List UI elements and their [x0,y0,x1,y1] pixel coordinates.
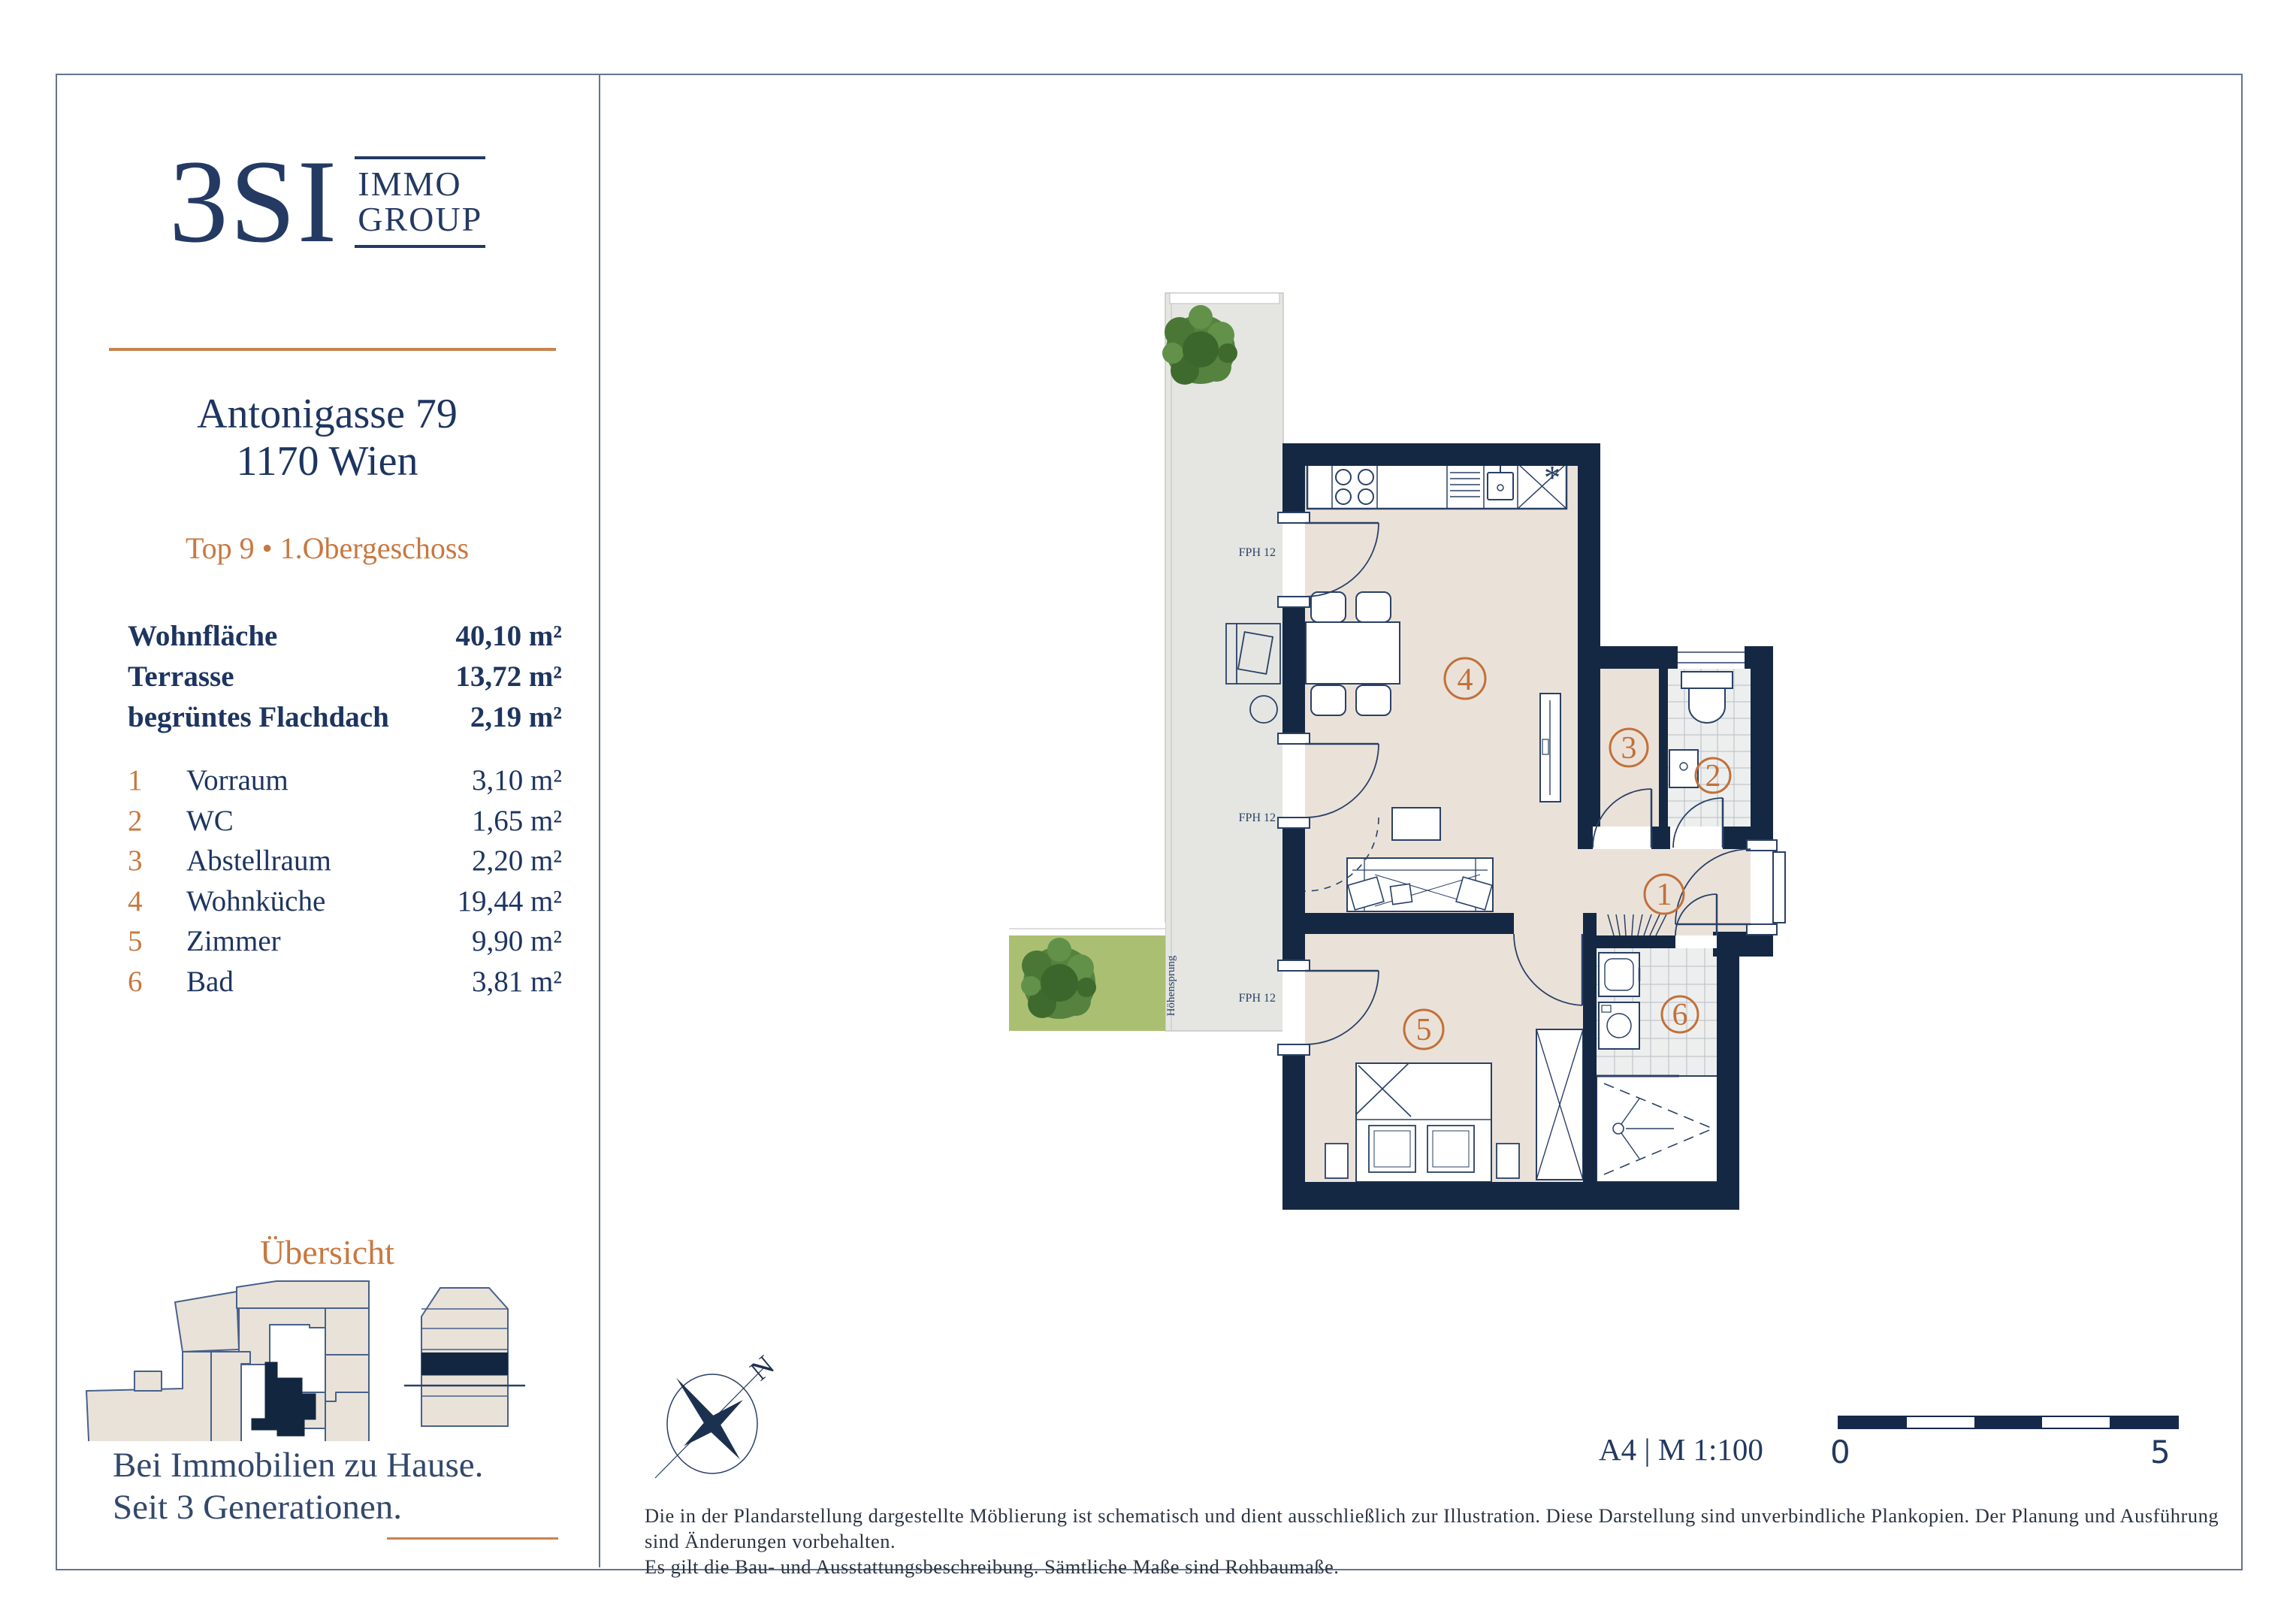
tagline-line1: Bei Immobilien zu Hause. [113,1444,594,1486]
room-number: 6 [128,962,186,1002]
kitchen-counter [1307,464,1566,509]
room-number: 5 [128,921,186,962]
sidebar-orange-rule [109,348,556,351]
floor-plan: * [999,188,1841,1240]
overview-site-plan [71,1280,372,1441]
room-number: 2 [128,801,186,842]
room-name: WC [186,801,472,842]
room-area: 1,65 m² [472,801,562,842]
floor-plan-sheet: 3SI IMMO GROUP Antonigasse 79 1170 Wien … [0,0,2296,1623]
summary-value: 13,72 m² [455,657,562,697]
logo-sub-line2: GROUP [358,202,482,237]
logo-3si-text: 3SI [169,143,339,261]
coffee-table [1392,808,1440,840]
disclaimer: Die in der Plandarstellung dargestellte … [645,1503,2230,1579]
bath-washbasin [1599,953,1639,996]
logo-immo-group: IMMO GROUP [355,156,485,248]
scale-bar [1838,1416,2179,1429]
scale-five-label: 5 [2150,1434,2171,1470]
tagline-orange-rule [387,1537,558,1540]
north-compass-icon: N [646,1349,781,1492]
room-row: 1 Vorraum 3,10 m² [128,760,562,801]
room-name: Wohnküche [186,881,457,922]
nightstand [1325,1144,1348,1178]
room-area: 19,44 m² [457,881,562,922]
room-name: Zimmer [186,921,472,962]
summary-value: 2,19 m² [470,697,562,738]
address-line1: Antonigasse 79 [56,391,599,438]
room-name: Vorraum [186,760,472,801]
summary-row: Terrasse 13,72 m² [128,657,562,697]
scale-zero-label: 0 [1830,1434,1850,1470]
brand-logo: 3SI IMMO GROUP [56,143,599,261]
overview-title: Übersicht [56,1232,599,1272]
room-row: 6 Bad 3,81 m² [128,962,562,1002]
disclaimer-line2: Es gilt die Bau- und Ausstattungsbeschre… [645,1554,2230,1579]
summary-label: Wohnfläche [128,616,277,657]
wc-washbasin [1669,750,1698,787]
address-block: Antonigasse 79 1170 Wien [56,391,599,485]
room-list: 1 Vorraum 3,10 m² 2 WC 1,65 m² 3 Abstell… [128,760,562,1002]
room-name: Abstellraum [186,841,472,881]
summary-row: begrüntes Flachdach 2,19 m² [128,697,562,738]
tv-sideboard [1540,694,1560,802]
room-area: 2,20 m² [472,841,562,881]
summary-label: Terrasse [128,657,234,697]
room-number: 4 [128,881,186,922]
address-line2: 1170 Wien [56,438,599,485]
room-badge-3: 3 [1621,731,1637,766]
shower [1597,1076,1718,1182]
room-area: 9,90 m² [472,921,562,962]
nightstand [1497,1144,1519,1178]
room-badge-1: 1 [1657,878,1672,912]
highlighted-floor [421,1352,508,1375]
bed [1356,1063,1491,1182]
room-row: 2 WC 1,65 m² [128,801,562,842]
disclaimer-line1: Die in der Plandarstellung dargestellte … [645,1503,2230,1554]
tagline-line2: Seit 3 Generationen. [113,1486,594,1528]
fph-label: FPH 12 [1239,992,1276,1005]
wardrobe [1536,1029,1583,1180]
room-number: 1 [128,760,186,801]
summary-value: 40,10 m² [455,616,562,657]
logo-sub-line1: IMMO [358,167,482,202]
format-scale-label: A4 | M 1:100 [1599,1431,1779,1467]
hoehensprung-label: Höhensprung [1165,955,1177,1016]
brand-tagline: Bei Immobilien zu Hause. Seit 3 Generati… [113,1444,594,1528]
north-label: N [745,1349,781,1387]
fph-label: FPH 12 [1239,546,1276,559]
room-area: 3,10 m² [472,760,562,801]
room-row: 3 Abstellraum 2,20 m² [128,841,562,881]
fph-label: FPH 12 [1239,811,1276,824]
room-number: 3 [128,841,186,881]
room-row: 5 Zimmer 9,90 m² [128,921,562,962]
terrace-armchair [1226,624,1280,684]
summary-row: Wohnfläche 40,10 m² [128,616,562,657]
room-name: Bad [186,962,472,1002]
room-badge-2: 2 [1705,759,1721,793]
room-badge-5: 5 [1416,1013,1432,1047]
room-badge-6: 6 [1672,998,1688,1032]
room-area: 3,81 m² [472,962,562,1002]
sidebar-divider [599,74,600,1567]
sofa [1347,858,1493,911]
unit-title: Top 9 • 1.Obergeschoss [56,530,599,566]
area-summary-table: Wohnfläche 40,10 m² Terrasse 13,72 m² be… [128,616,562,738]
washing-machine [1599,1002,1639,1049]
overview-section [403,1277,527,1431]
room-row: 4 Wohnküche 19,44 m² [128,881,562,922]
summary-label: begrüntes Flachdach [128,697,389,738]
room-badge-4: 4 [1458,663,1473,697]
